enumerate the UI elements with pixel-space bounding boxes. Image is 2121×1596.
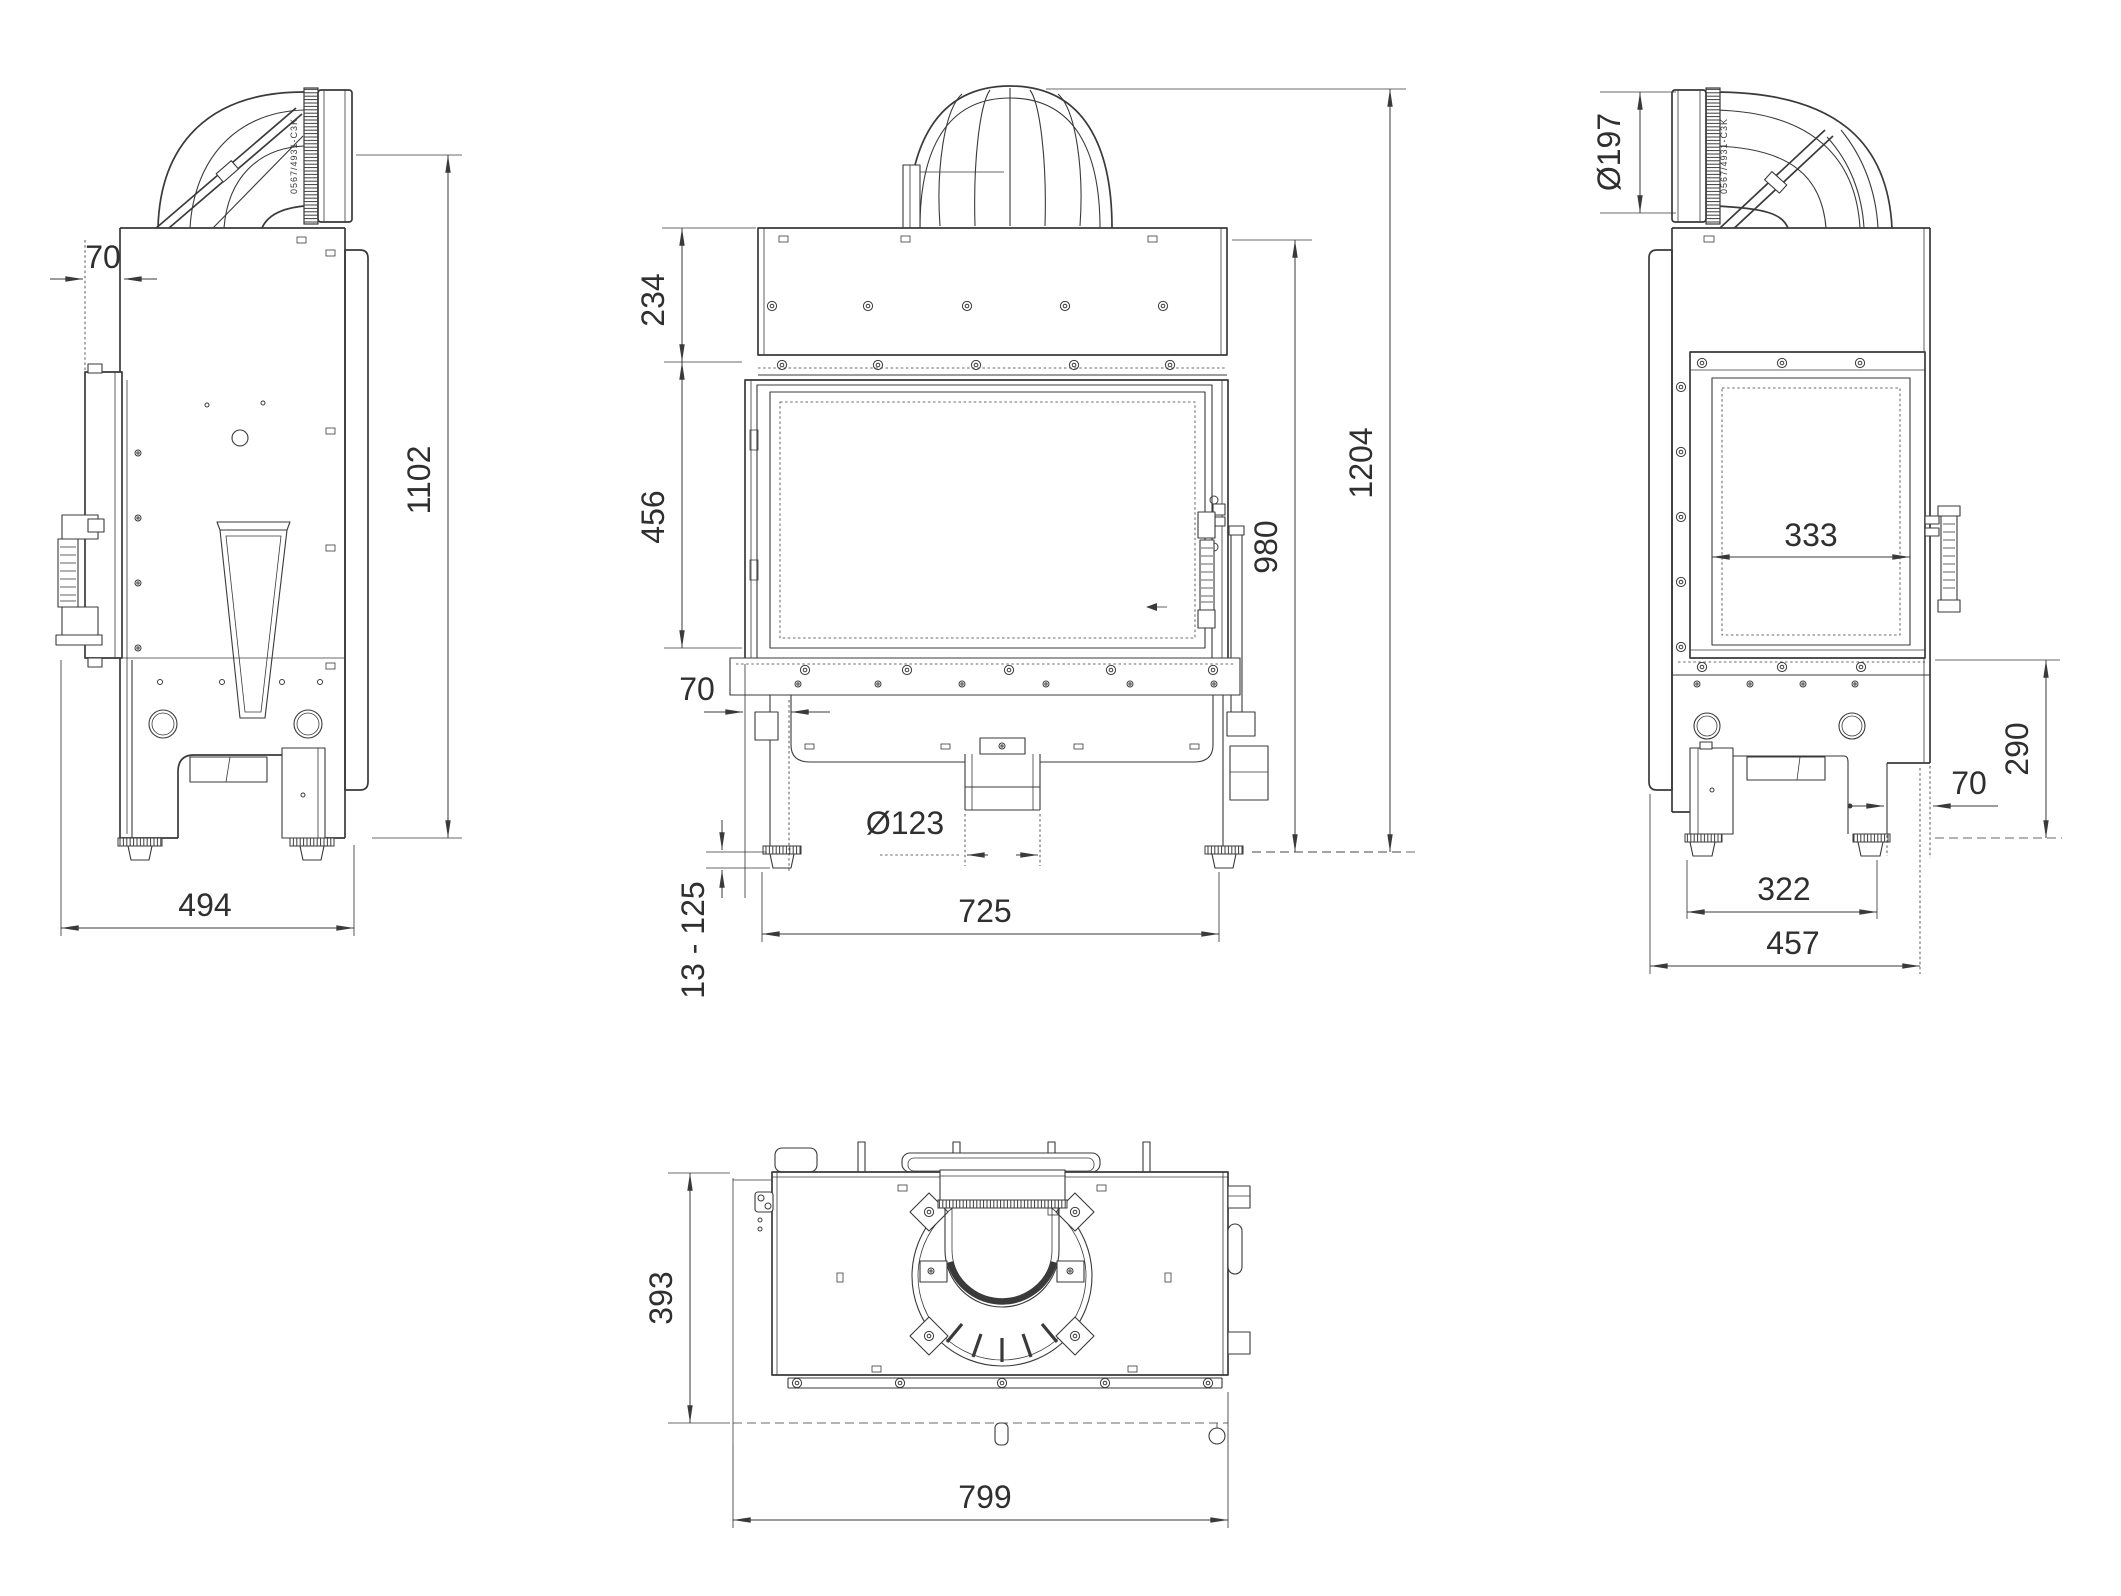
adjustable-feet	[1685, 834, 2062, 856]
dim-front-upper-section: 234	[635, 228, 756, 362]
dim-label-front-o123: Ø123	[866, 805, 944, 841]
plinth-and-legs	[755, 695, 1420, 868]
body-panel	[120, 228, 368, 838]
pipe-marking-label: 0567/4931-C3K	[1719, 118, 1729, 194]
firebox-door	[745, 380, 1228, 662]
left-side-view: 0567/4931-C3K	[50, 88, 462, 936]
dim-front-air-inlet-diameter: Ø123	[866, 805, 1040, 866]
dim-right-plinth-height: 290	[1935, 660, 2060, 838]
dim-label-right-333: 333	[1784, 517, 1837, 553]
top-view: 393 799	[643, 1142, 1250, 1528]
dim-label-right-o197: Ø197	[1591, 113, 1627, 191]
dim-label-left-494: 494	[178, 887, 231, 923]
dim-left-height-to-flue-axis: 1102	[356, 155, 462, 838]
air-inlet-duct	[965, 738, 1040, 810]
dim-right-flue-diameter: Ø197	[1591, 92, 1676, 213]
flue-elbow-icon: 0567/4931-C3K	[155, 88, 352, 234]
flue-dome-icon	[903, 86, 1112, 228]
dim-front-door-glass-height: 456	[635, 362, 742, 648]
dim-top-body-depth: 393	[643, 1173, 730, 1423]
dim-label-left-70: 70	[85, 239, 121, 275]
base-mounting-band	[730, 658, 1240, 695]
dim-front-leveling-feet-range: 13 - 125	[675, 820, 770, 999]
dim-label-left-1102: 1102	[401, 446, 437, 515]
front-plate	[733, 1378, 1228, 1445]
dim-label-front-70: 70	[679, 671, 715, 707]
technical-drawing-canvas: 0567/4931-C3K	[0, 0, 2121, 1596]
dim-top-body-width: 799	[733, 1392, 1228, 1528]
pipe-marking-label: 0567/4931-C3K	[289, 118, 299, 194]
dim-label-right-70: 70	[1951, 765, 1987, 801]
upper-heat-shield	[758, 228, 1227, 375]
dim-front-feet-span: 725	[762, 872, 1219, 942]
right-side-view: 0567/4931-C3K	[1591, 88, 2062, 974]
dim-label-front-234: 234	[635, 273, 671, 326]
dim-label-front-456: 456	[635, 490, 671, 543]
dim-label-front-980: 980	[1248, 520, 1284, 573]
dim-label-top-393: 393	[643, 1271, 679, 1324]
dim-label-right-457: 457	[1766, 925, 1819, 961]
dim-label-right-322: 322	[1757, 871, 1810, 907]
technical-drawing-page: 0567/4931-C3K	[0, 0, 2121, 1596]
dim-label-front-1204: 1204	[1343, 427, 1379, 498]
dim-front-base-recess: 70	[679, 664, 830, 898]
dim-label-top-799: 799	[958, 1479, 1011, 1515]
front-view: 234 456 70 980 1204 Ø123 13 - 125	[635, 86, 1420, 999]
dim-label-front-725: 725	[958, 893, 1011, 929]
dim-right-front-offset: 70	[1848, 765, 1999, 858]
dim-label-right-290: 290	[1999, 722, 2035, 775]
adjustable-feet	[118, 838, 334, 860]
dim-right-feet-span: 322	[1687, 860, 1877, 919]
flue-elbow-icon: 0567/4931-C3K	[1672, 88, 1892, 234]
dim-label-front-13-125: 13 - 125	[675, 881, 711, 998]
